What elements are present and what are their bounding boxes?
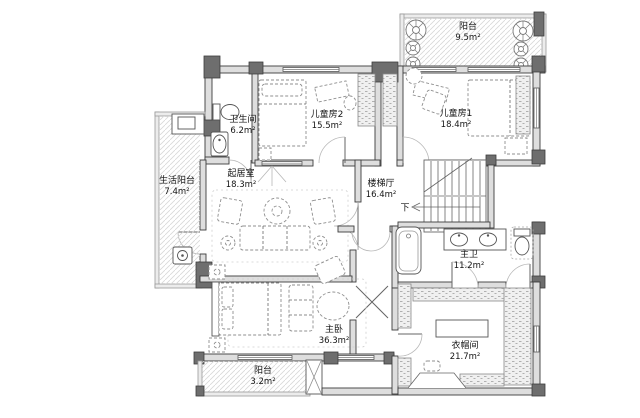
washing-machine-icon [173, 247, 192, 264]
side-table-icon [221, 236, 235, 250]
chair-icon [344, 96, 356, 110]
bay-window [408, 373, 466, 388]
room-name: 衣帽间 [450, 341, 481, 352]
plant-icon [514, 42, 528, 56]
plant-icon [406, 41, 420, 55]
armchair-icon [217, 197, 243, 224]
side-table-icon [505, 138, 527, 154]
balcony-bottom-structure [196, 360, 398, 396]
floor-plan-drawing [0, 0, 640, 418]
bed-icon [259, 80, 306, 146]
room-area: 16.4m² [366, 190, 397, 201]
plant-icon [406, 20, 426, 40]
room-label-master-bathroom: 主卫 11.2m² [454, 250, 485, 272]
room-name: 卫生间 [229, 115, 256, 126]
room-area: 36.3m² [319, 336, 350, 347]
room-label-balcony-top: 阳台 9.5m² [455, 22, 480, 44]
room-name: 儿童房2 [311, 110, 344, 121]
room-name: 主卫 [454, 250, 485, 261]
room-area: 18.4m² [440, 120, 473, 131]
toilet-icon [511, 227, 533, 259]
round-table-icon [264, 198, 290, 224]
armchair-icon [310, 197, 336, 224]
room-name: 阳台 [250, 366, 275, 377]
island-icon [436, 320, 488, 337]
room-name: 阳台 [455, 22, 480, 33]
wardrobe-icon [383, 74, 397, 126]
table-icon [406, 68, 422, 84]
room-label-children-room-1: 儿童房1 18.4m² [440, 109, 473, 131]
wardrobe-icon [413, 288, 505, 301]
bed-icon [212, 282, 281, 336]
plant-icon [513, 21, 533, 41]
nightstand-icon [209, 265, 225, 279]
room-label-walk-in-closet: 衣帽间 21.7m² [450, 341, 481, 363]
staircase [412, 155, 496, 232]
room-name: 生活阳台 [159, 176, 195, 187]
room-area: 18.3m² [226, 180, 257, 191]
sink-icon [211, 132, 228, 156]
walk-in-closet-structure [392, 282, 545, 396]
room-label-stair-hall: 楼梯厅 16.4m² [366, 179, 397, 201]
stool-icon [424, 361, 440, 371]
chaise-icon [289, 285, 313, 331]
room-name: 儿童房1 [440, 109, 473, 120]
stairs-down-label: 下 [400, 201, 409, 214]
double-sink-icon [444, 229, 506, 250]
room-name: 主卧 [319, 325, 350, 336]
room-label-children-room-2: 儿童房2 15.5m² [311, 110, 344, 132]
wardrobe-icon [398, 284, 411, 328]
room-area: 15.5m² [311, 121, 344, 132]
side-table-icon [313, 236, 327, 250]
room-label-utility-balcony: 生活阳台 7.4m² [159, 176, 195, 198]
wardrobe-icon [398, 358, 411, 386]
room-name: 楼梯厅 [366, 179, 397, 190]
ac-unit-icon [178, 117, 195, 129]
room-area: 21.7m² [450, 352, 481, 363]
bathtub-icon [396, 227, 421, 274]
desk-icon [315, 81, 349, 102]
living-room-furniture [212, 190, 348, 262]
room-area: 11.2m² [454, 261, 485, 272]
wardrobe-icon [358, 74, 375, 126]
room-label-master-bedroom: 主卧 36.3m² [319, 325, 350, 347]
room-area: 9.5m² [455, 33, 480, 44]
room-area: 3.2m² [250, 377, 275, 388]
sofa-icon [240, 226, 310, 250]
round-table-icon [317, 292, 349, 320]
wardrobe-icon [516, 76, 530, 134]
wardrobe-icon [504, 288, 531, 385]
room-label-bathroom: 卫生间 6.2m² [229, 115, 256, 137]
floor-plan-canvas: 阳台 9.5m² 儿童房2 15.5m² 儿童房1 18.4m² 卫生间 6.2… [0, 0, 640, 418]
room-area: 6.2m² [229, 126, 256, 137]
room-label-living-room: 起居室 18.3m² [226, 169, 257, 191]
room-label-balcony-bottom: 阳台 3.2m² [250, 366, 275, 388]
room-area: 7.4m² [159, 187, 195, 198]
nightstand-icon [259, 148, 271, 160]
room-name: 起居室 [226, 169, 257, 180]
wardrobe-icon [460, 374, 504, 386]
nightstand-icon [209, 338, 225, 352]
